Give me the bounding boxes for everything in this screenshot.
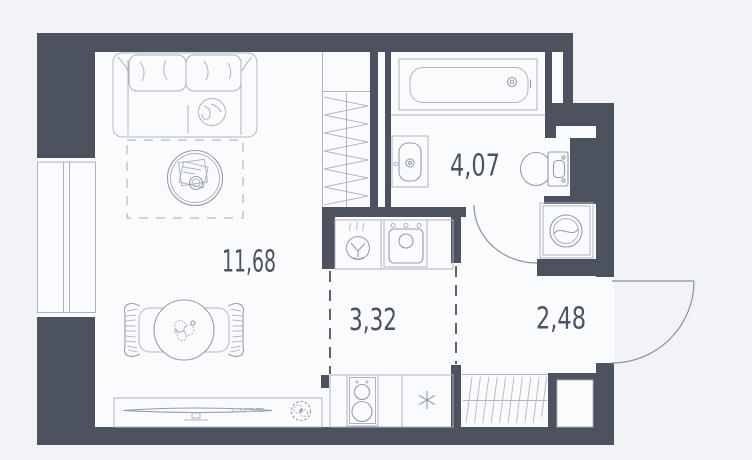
living-room-area-label: 11,68 <box>222 245 276 280</box>
niche-box <box>557 380 593 427</box>
hallway-area-label: 2,48 <box>536 302 586 337</box>
bathroom-area-label: 4,07 <box>450 149 500 184</box>
coffee-table-icon <box>168 151 223 206</box>
toilet-icon <box>521 152 569 186</box>
floor-plan-page: 11,68 3,32 4,07 2,48 <box>0 0 752 460</box>
entrance-door-arc <box>612 281 694 363</box>
vent-shaft <box>552 52 563 103</box>
exterior-notch <box>573 33 614 103</box>
window-icon <box>37 158 96 317</box>
sofa-icon <box>113 53 257 137</box>
floor-plan: 11,68 3,32 4,07 2,48 <box>0 0 752 460</box>
kitchen-area-label: 3,32 <box>349 303 397 338</box>
